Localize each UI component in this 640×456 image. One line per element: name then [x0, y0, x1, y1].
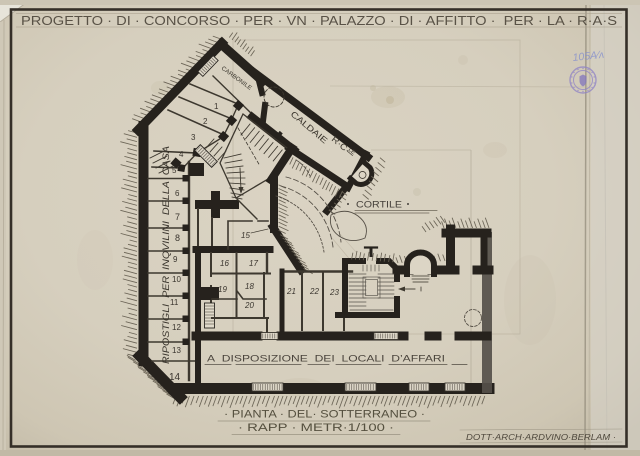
svg-text:16: 16 [220, 259, 229, 268]
svg-text:22: 22 [309, 287, 319, 296]
svg-text:CORTILE: CORTILE [356, 200, 402, 211]
svg-text:9: 9 [173, 255, 178, 264]
svg-text:A DISPOSIZIONE DEI LOCALI: A DISPOSIZIONE DEI LOCALI D’AFFARI [207, 354, 445, 365]
svg-text:RIPOSTIGLI PER INQVILINI DE: RIPOSTIGLI PER INQVILINI DELLA CASA [161, 146, 172, 364]
svg-text:20: 20 [244, 301, 254, 310]
svg-text:13: 13 [172, 346, 181, 355]
svg-text:2: 2 [203, 117, 208, 126]
svg-text:17: 17 [249, 259, 258, 268]
svg-text:8: 8 [175, 233, 180, 243]
svg-text:10: 10 [172, 275, 181, 284]
svg-text:DOTT·ARCH·ARDVINO·BERLAM ·: DOTT·ARCH·ARDVINO·BERLAM · [466, 432, 616, 442]
svg-text:18: 18 [245, 282, 254, 291]
svg-text:7: 7 [175, 212, 180, 222]
svg-text:1: 1 [214, 102, 219, 111]
svg-text:15: 15 [241, 231, 250, 240]
svg-text:4: 4 [179, 150, 184, 159]
svg-text:21: 21 [286, 287, 296, 296]
svg-text:· RAPP · METR·1/100 ·: · RAPP · METR·1/100 · [238, 422, 394, 434]
svg-text:12: 12 [172, 323, 181, 332]
svg-text:23: 23 [329, 288, 339, 297]
svg-text:PROGETTO · DI · CONCORSO · PER: PROGETTO · DI · CONCORSO · PER · VN · PA… [21, 13, 617, 28]
svg-text:6: 6 [175, 189, 180, 198]
svg-text:14: 14 [169, 372, 181, 383]
svg-text:· PIANTA · DEL· SOTTERRANEO ·: · PIANTA · DEL· SOTTERRANEO · [224, 409, 425, 421]
svg-text:3: 3 [191, 133, 196, 142]
svg-text:19: 19 [218, 285, 227, 294]
